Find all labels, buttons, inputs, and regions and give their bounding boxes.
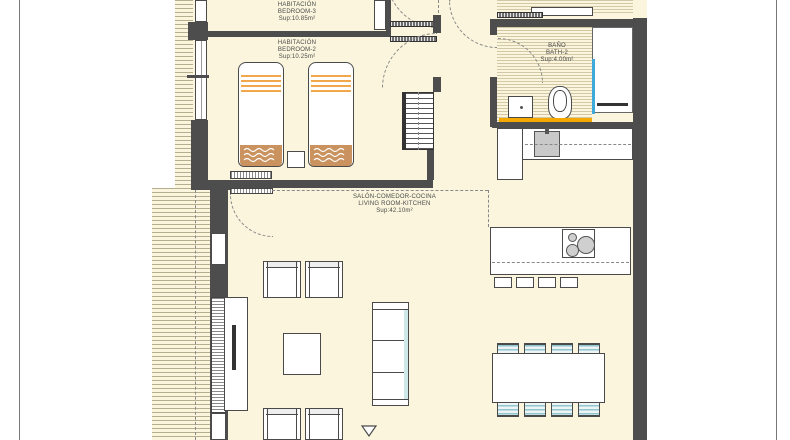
bedroom3-name-en: BEDROOM-3 <box>252 9 342 16</box>
shower <box>592 27 633 113</box>
sliding-leaf-bath-1 <box>497 12 543 18</box>
floor-plan-sheet: HABITACIÓN BEDROOM-3 Sup:10.85m² HABITAC… <box>0 0 790 440</box>
armchair2-arm-right <box>338 262 342 297</box>
sofa-armrest-top <box>373 309 408 310</box>
living-area: Sup:42.10m² <box>317 208 472 215</box>
bath2-area: Sup:4.00m² <box>523 57 591 64</box>
window-mullion-tick <box>187 75 209 78</box>
bed1-wave-pattern <box>240 145 282 166</box>
sheet-border-left <box>19 0 20 440</box>
armchair4-back <box>308 409 340 415</box>
bed-single-1 <box>238 62 284 167</box>
tv-unit <box>224 297 248 411</box>
burner-medium <box>566 244 579 257</box>
island-stool-4 <box>560 277 578 288</box>
bed2-pillow-stripes <box>311 75 351 92</box>
window-living-2 <box>211 413 226 440</box>
wall-bath-top <box>492 19 633 27</box>
door-leaf-bedroom3 <box>374 0 386 30</box>
island-stool-2 <box>516 277 534 288</box>
wall-below-closet <box>427 150 434 180</box>
bath2-name-es: BAÑO <box>523 43 591 50</box>
bed1-pillow-stripes <box>241 75 281 92</box>
level-marker-triangle <box>360 424 378 438</box>
wall-block-upper-2 <box>191 120 208 188</box>
wall-right-exterior <box>633 18 647 440</box>
shower-glass-blue <box>592 59 595 114</box>
wall-stub-corridor-a <box>433 15 441 33</box>
living-boundary-dashed-h <box>272 190 488 191</box>
bath-sink-drain <box>520 106 523 109</box>
kitchen-faucet <box>545 128 549 134</box>
burner-large <box>577 236 595 254</box>
armchair3-arm-left <box>264 409 268 439</box>
cooktop <box>562 229 595 258</box>
sofa-armrest-bottom <box>373 399 408 400</box>
bed1-blanket <box>240 145 282 166</box>
toilet <box>548 86 572 119</box>
bedroom3-area: Sup:10.85m² <box>252 16 342 23</box>
sofa-cushion-line-1 <box>373 340 408 341</box>
armchair1-arm-right <box>296 262 300 297</box>
armchair2-back <box>308 262 340 268</box>
living-name-es: SALÓN-COMEDOR-COCINA <box>317 194 472 201</box>
sofa-throw-teal <box>404 310 408 399</box>
terrace-dashed-line <box>195 190 196 440</box>
tv-screen <box>232 325 236 370</box>
room-label-bedroom3: HABITACIÓN BEDROOM-3 Sup:10.85m² <box>252 2 342 23</box>
wall-bedroom2-living <box>204 180 433 188</box>
window-upper-1 <box>195 0 207 22</box>
shower-towel-bar <box>597 103 628 106</box>
armchair-1 <box>263 261 301 298</box>
radiator-bedroom2 <box>230 171 272 179</box>
bedroom2-name-en: BEDROOM-2 <box>252 47 342 54</box>
living-name-en: LIVING ROOM-KITCHEN <box>317 201 472 208</box>
bath-sink <box>508 96 533 118</box>
armchair-4 <box>305 408 343 440</box>
armchair1-back <box>266 262 298 268</box>
armchair-2 <box>305 261 343 298</box>
armchair4-arm-right <box>338 409 342 439</box>
wall-stub-bath-left-lower <box>490 77 497 127</box>
wall-stub-bath-left-upper <box>490 19 497 35</box>
island-dashed-line <box>492 262 629 263</box>
wall-bedroom-divider <box>200 31 391 37</box>
armchair3-arm-right <box>296 409 300 439</box>
kitchen-island <box>490 227 631 275</box>
room-label-living: SALÓN-COMEDOR-COCINA LIVING ROOM-KITCHEN… <box>317 194 472 215</box>
window-glazing-line <box>201 41 202 119</box>
armchair1-arm-left <box>264 262 268 297</box>
toilet-bowl <box>553 90 567 112</box>
window-living-1 <box>211 233 226 265</box>
terrace-deck-lower <box>152 188 210 440</box>
armchair3-back <box>266 409 298 415</box>
sofa-cushion-line-2 <box>373 372 408 373</box>
kitchen-counter-dashed <box>525 144 631 145</box>
bed2-blanket <box>310 145 352 166</box>
room-label-bath2: BAÑO BATH-2 Sup:4.00m² <box>523 43 591 64</box>
armchair2-arm-left <box>306 262 310 297</box>
bath2-name-en: BATH-2 <box>523 50 591 57</box>
bedroom2-name-es: HABITACIÓN <box>252 40 342 47</box>
burner-small <box>568 233 577 242</box>
armchair-3 <box>263 408 301 440</box>
bedroom2-area: Sup:10.25m² <box>252 54 342 61</box>
bed-single-2 <box>308 62 354 167</box>
sheet-border-right <box>776 0 777 440</box>
sofa <box>372 302 409 406</box>
dining-table <box>492 353 605 403</box>
bed2-wave-pattern <box>310 145 352 166</box>
island-stool-1 <box>494 277 512 288</box>
wall-stub-corridor-b <box>433 77 441 92</box>
nightstand <box>287 151 305 168</box>
room-label-bedroom2: HABITACIÓN BEDROOM-2 Sup:10.25m² <box>252 40 342 61</box>
living-boundary-dashed-v <box>488 190 489 227</box>
bedroom3-name-es: HABITACIÓN <box>252 2 342 9</box>
armchair4-arm-left <box>306 409 310 439</box>
island-stool-3 <box>538 277 556 288</box>
coffee-table <box>283 333 321 375</box>
closet-center-dashed <box>418 92 419 150</box>
kitchen-tall-cabinet <box>497 128 523 180</box>
window-upper-2 <box>195 40 207 120</box>
sliding-leaf-bedrooms-1 <box>390 21 437 27</box>
